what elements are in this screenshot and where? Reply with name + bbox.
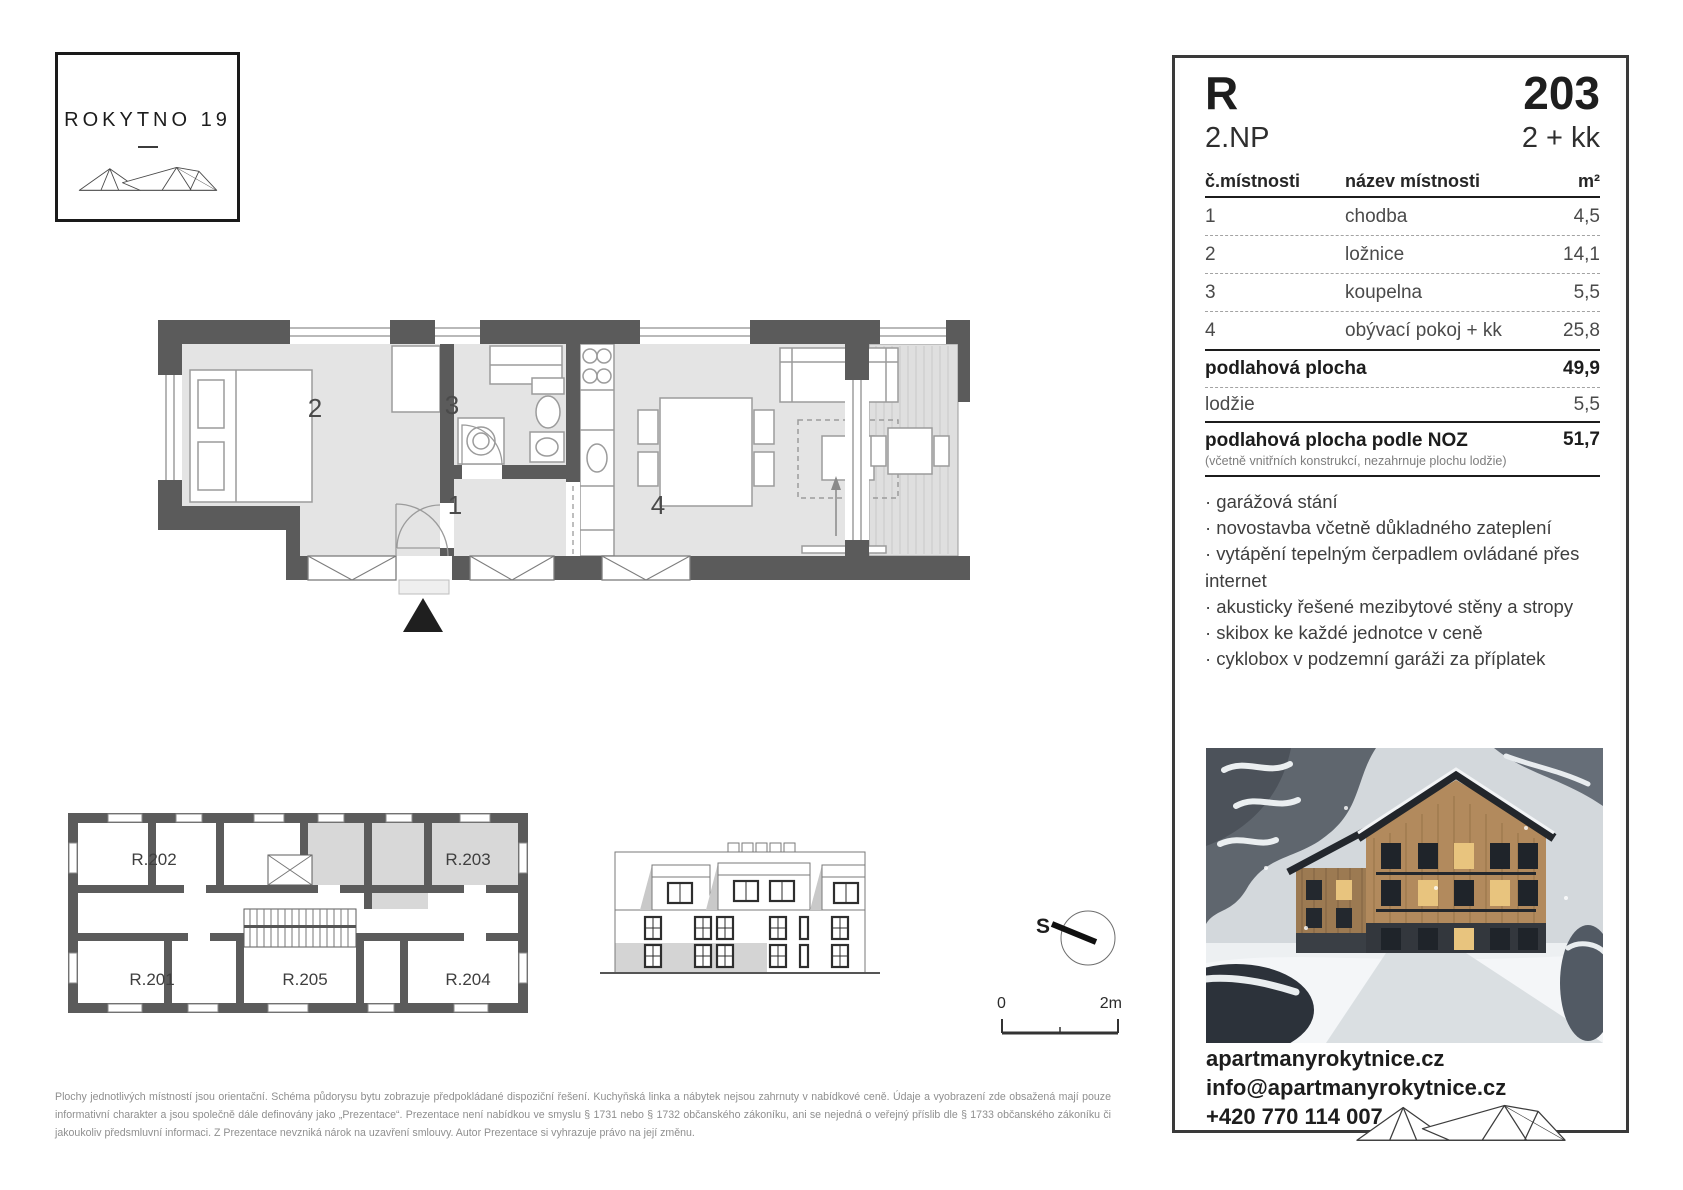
room-area: 25,8	[1528, 320, 1600, 342]
room-no: 4	[1205, 320, 1345, 342]
table-header: č.místnosti název místnosti m²	[1205, 160, 1600, 198]
loggia-row: lodžie 5,5	[1205, 388, 1600, 423]
room-label-4: 4	[651, 490, 665, 520]
feature-list: · garážová stání · novostavba včetně důk…	[1205, 489, 1600, 672]
unit-number: 203	[1523, 66, 1600, 120]
entrance-marker-icon	[403, 598, 443, 632]
scale-bar: 0 2m	[995, 988, 1130, 1040]
room-name: ložnice	[1345, 244, 1528, 266]
feature-item: · cyklobox v podzemní garáži za příplate…	[1205, 646, 1600, 672]
floor-area-label: podlahová plocha	[1205, 358, 1520, 380]
table-row: 4 obývací pokoj + kk 25,8	[1205, 312, 1600, 351]
table-row: 3 koupelna 5,5	[1205, 274, 1600, 312]
unit-label-r202: R.202	[131, 850, 176, 869]
brand-name: ROKYTNO 19	[58, 109, 237, 132]
feature-item: · skibox ke každé jednotce v ceně	[1205, 620, 1600, 646]
unit-label-r201: R.201	[129, 970, 174, 989]
floor-label: 2.NP	[1205, 120, 1269, 160]
compass-needle-icon	[1052, 924, 1096, 942]
room-area: 14,1	[1528, 244, 1600, 266]
noz-note: (včetně vnitřních konstrukcí, nezahrnuje…	[1205, 454, 1520, 468]
loggia-label: lodžie	[1205, 394, 1520, 416]
footer-mountains-icon	[1355, 1096, 1567, 1144]
table-row: 1 chodba 4,5	[1205, 198, 1600, 236]
feature-item: · garážová stání	[1205, 489, 1600, 515]
unit-label-r203: R.203	[445, 850, 490, 869]
brand-dash	[138, 146, 158, 148]
overview-floor-plan: R.202 R.203 R.201 R.205 R.204	[68, 813, 528, 1013]
main-floor-plan: 2 3 1 4	[140, 290, 970, 640]
compass-south-label: S	[1036, 915, 1050, 938]
room-name: chodba	[1345, 206, 1528, 228]
room-label-3: 3	[445, 390, 459, 420]
room-no: 2	[1205, 244, 1345, 266]
table-row: 2 ložnice 14,1	[1205, 236, 1600, 274]
scale-end-label: 2m	[1100, 995, 1122, 1012]
room-label-1: 1	[448, 490, 462, 520]
unit-info-panel: R 203 2.NP 2 + kk č.místnosti název míst…	[1172, 55, 1629, 1133]
building-photo	[1206, 748, 1603, 1043]
room-name: obývací pokoj + kk	[1345, 320, 1528, 342]
brochure-sheet: ROKYTNO 19	[0, 0, 1683, 1190]
compass: S	[1028, 902, 1120, 974]
noz-value: 51,7	[1520, 429, 1600, 451]
room-area: 5,5	[1528, 282, 1600, 304]
room-name: koupelna	[1345, 282, 1528, 304]
unit-label-r205: R.205	[282, 970, 327, 989]
room-label-2: 2	[308, 393, 322, 423]
column-room-number: č.místnosti	[1205, 171, 1345, 192]
brand-mountains-icon	[78, 160, 218, 194]
floor-area-value: 49,9	[1520, 358, 1600, 380]
disposition-label: 2 + kk	[1522, 120, 1600, 160]
website-label: apartmanyrokytnice.cz	[1206, 1044, 1506, 1073]
floor-area-row: podlahová plocha 49,9	[1205, 351, 1600, 388]
noz-label: podlahová plocha podle NOZ	[1205, 430, 1520, 452]
building-letter: R	[1205, 66, 1238, 120]
room-no: 1	[1205, 206, 1345, 228]
column-area: m²	[1528, 171, 1600, 192]
noz-row: podlahová plocha podle NOZ (včetně vnitř…	[1205, 423, 1600, 477]
building-elevation	[600, 795, 880, 980]
scale-start-label: 0	[997, 995, 1006, 1012]
feature-item: · vytápění tepelným čerpadlem ovládané p…	[1205, 541, 1600, 593]
feature-item: · akusticky řešené mezibytové stěny a st…	[1205, 594, 1600, 620]
column-room-name: název místnosti	[1345, 171, 1528, 192]
room-area: 4,5	[1528, 206, 1600, 228]
unit-label-r204: R.204	[445, 970, 490, 989]
brand-logo-box: ROKYTNO 19	[55, 52, 240, 222]
disclaimer-text: Plochy jednotlivých místností jsou orien…	[55, 1088, 1111, 1142]
feature-item: · novostavba včetně důkladného zateplení	[1205, 515, 1600, 541]
loggia-value: 5,5	[1520, 394, 1600, 416]
room-no: 3	[1205, 282, 1345, 304]
